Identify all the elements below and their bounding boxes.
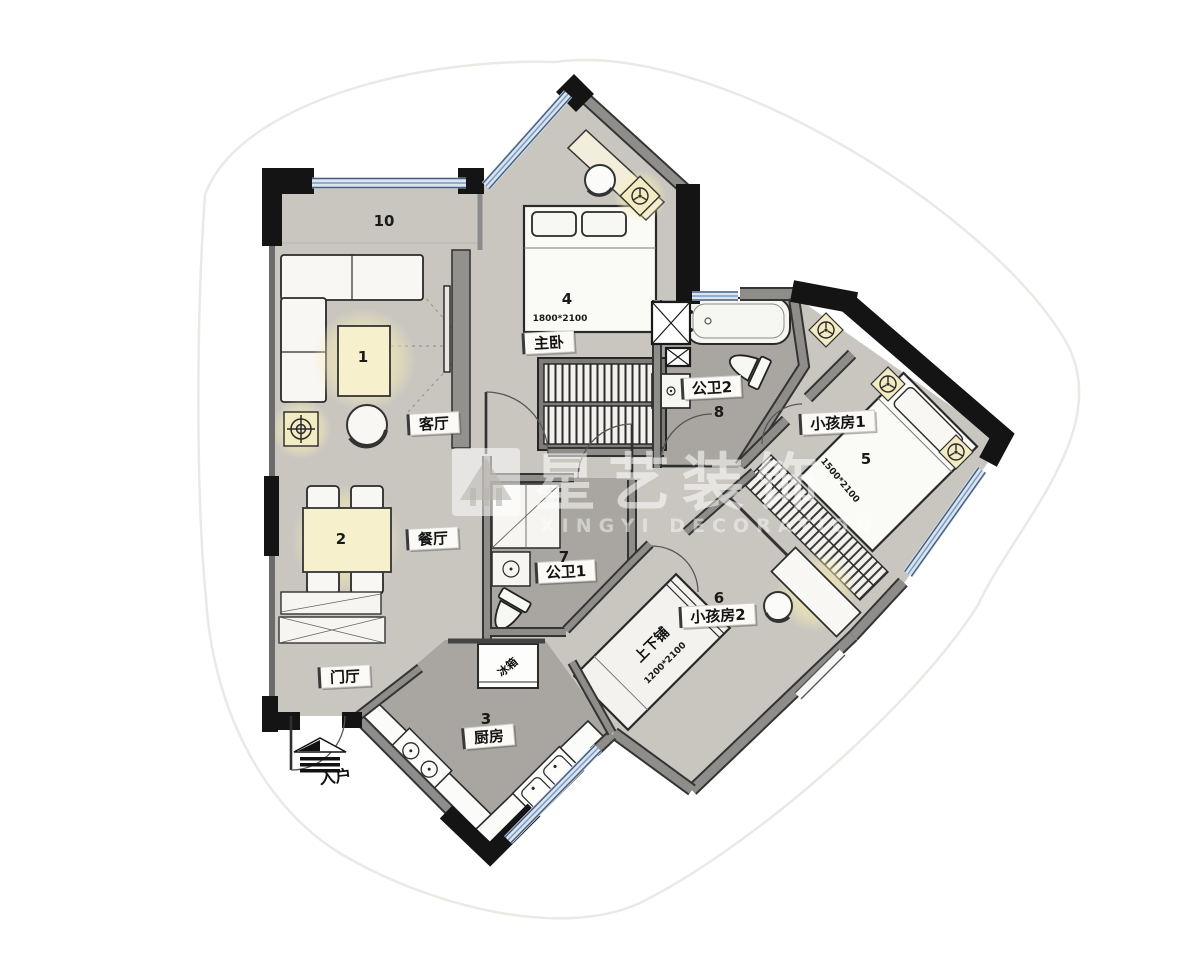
number-master: 4: [562, 290, 572, 308]
number-kitchen: 3: [481, 710, 491, 728]
tv: [444, 286, 450, 372]
watermark-subtitle: XINGYI DECORATION: [540, 515, 878, 537]
svg-text:厨房: 厨房: [473, 727, 504, 748]
tag-kids2: 小孩房2: [678, 603, 757, 630]
svg-text:公卫2: 公卫2: [691, 378, 732, 398]
window-bath2: [692, 292, 738, 300]
kids1-stool: [764, 592, 792, 621]
svg-text:主卧: 主卧: [534, 333, 565, 353]
dining-table: [303, 508, 391, 572]
entry-label: 入户: [318, 766, 352, 788]
master-wardrobe: [538, 358, 666, 450]
svg-text:门厅: 门厅: [330, 667, 361, 687]
number-bath2: 8: [714, 403, 724, 421]
number-kids2: 6: [714, 589, 724, 607]
tag-bath2: 公卫2: [680, 375, 743, 401]
tag-kids1: 小孩房1: [798, 410, 877, 437]
dim-master-bed: 1800*2100: [533, 314, 588, 324]
pillow: [582, 212, 626, 236]
svg-text:小孩房1: 小孩房1: [810, 413, 866, 434]
lounge-chair: [347, 405, 387, 446]
number-kids1: 5: [861, 450, 871, 468]
tag-living: 客厅: [406, 412, 461, 438]
floor-plan-canvas: 星艺装饰 XINGYI DECORATION 入户 客厅 餐厅 门厅: [0, 0, 1200, 965]
column-x-small: [666, 348, 690, 366]
vanity-stool: [585, 165, 615, 195]
svg-text:小孩房2: 小孩房2: [690, 606, 746, 627]
chair: [351, 570, 383, 594]
number-balcony: 10: [374, 212, 395, 230]
bathtub: [686, 298, 790, 344]
chair: [307, 570, 339, 594]
column-x-large: [652, 302, 690, 344]
watermark-brand: 星艺装饰: [534, 446, 830, 519]
number-bath1: 7: [559, 548, 569, 566]
svg-text:客厅: 客厅: [418, 414, 450, 434]
floor-plan-svg: 星艺装饰 XINGYI DECORATION 入户 客厅 餐厅 门厅: [0, 0, 1200, 965]
chair: [307, 486, 339, 510]
tag-hall: 门厅: [317, 665, 372, 691]
sideboard: [279, 592, 385, 643]
chair: [351, 486, 383, 510]
tag-dining: 餐厅: [405, 527, 460, 553]
window-living: [312, 179, 466, 188]
svg-text:餐厅: 餐厅: [418, 529, 449, 549]
tag-master: 主卧: [521, 331, 576, 357]
bath1-washbasin: [492, 552, 530, 586]
number-coffee-table: 1: [358, 348, 368, 366]
number-dining: 2: [336, 530, 346, 548]
pillow: [532, 212, 576, 236]
